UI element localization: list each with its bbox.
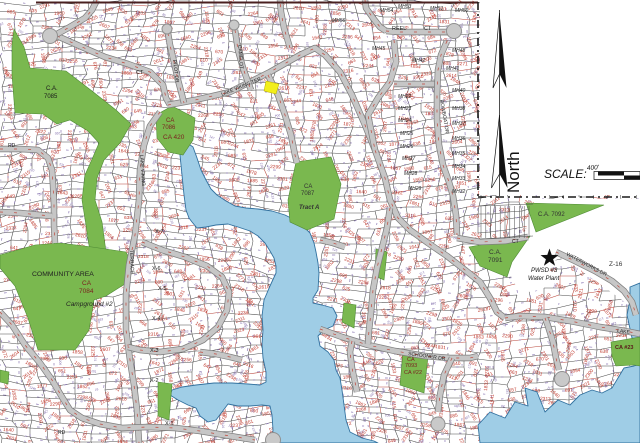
svg-text:7093: 7093 <box>405 363 417 369</box>
svg-text:MH25: MH25 <box>400 131 414 137</box>
svg-text:108: 108 <box>310 139 316 144</box>
svg-text:254: 254 <box>202 18 206 24</box>
svg-text:1833: 1833 <box>483 380 490 391</box>
svg-text:181: 181 <box>505 389 510 395</box>
svg-text:649: 649 <box>356 235 363 244</box>
svg-text:C.A.: C.A. <box>46 86 58 92</box>
svg-text:244: 244 <box>418 429 423 435</box>
svg-text:CT: CT <box>424 26 432 32</box>
svg-text:CA: CA <box>166 118 174 124</box>
svg-text:MH28: MH28 <box>404 171 418 177</box>
svg-text:7087: 7087 <box>301 191 315 197</box>
svg-text:231: 231 <box>349 189 353 195</box>
svg-text:672: 672 <box>109 371 118 377</box>
svg-text:191: 191 <box>391 35 395 41</box>
svg-text:2618: 2618 <box>116 396 127 403</box>
svg-text:181: 181 <box>170 169 174 175</box>
svg-text:188: 188 <box>418 439 424 443</box>
svg-text:164: 164 <box>475 338 479 344</box>
svg-text:221: 221 <box>200 61 205 67</box>
svg-text:220: 220 <box>54 131 60 135</box>
svg-text:638: 638 <box>124 215 132 221</box>
svg-text:164: 164 <box>127 196 131 202</box>
svg-text:MH24: MH24 <box>398 118 412 124</box>
svg-text:MH35: MH35 <box>452 151 466 157</box>
svg-text:X-3: X-3 <box>150 348 159 354</box>
svg-text:2290: 2290 <box>400 298 407 309</box>
svg-text:2244: 2244 <box>363 63 374 69</box>
svg-text:82: 82 <box>501 404 505 408</box>
svg-text:MH23: MH23 <box>398 106 412 112</box>
svg-text:REEL: REEL <box>392 26 406 32</box>
svg-text:231: 231 <box>519 333 525 338</box>
svg-text:103: 103 <box>66 352 70 358</box>
svg-text:199: 199 <box>497 354 503 358</box>
svg-text:205: 205 <box>135 10 140 16</box>
svg-text:CA: CA <box>82 280 92 287</box>
svg-text:X-4: X-4 <box>152 316 161 322</box>
svg-text:7091: 7091 <box>488 257 503 264</box>
svg-text:215: 215 <box>42 174 47 180</box>
svg-text:193: 193 <box>7 87 11 93</box>
svg-text:238: 238 <box>320 32 326 36</box>
svg-text:MH36: MH36 <box>452 136 466 142</box>
svg-text:647: 647 <box>459 246 466 255</box>
svg-text:2290: 2290 <box>502 333 514 340</box>
svg-text:RD: RD <box>8 143 16 149</box>
svg-text:MH29: MH29 <box>408 186 422 192</box>
svg-text:242: 242 <box>251 407 255 413</box>
svg-text:209: 209 <box>134 306 140 311</box>
svg-text:157: 157 <box>385 150 391 154</box>
svg-text:Z-16: Z-16 <box>609 261 623 268</box>
svg-text:PWSD #3: PWSD #3 <box>531 268 558 274</box>
svg-text:184: 184 <box>191 105 195 111</box>
svg-text:171: 171 <box>44 408 48 414</box>
svg-text:C.A.: C.A. <box>489 249 502 256</box>
svg-text:696: 696 <box>89 80 96 89</box>
svg-text:222: 222 <box>3 228 7 234</box>
svg-text:TERRACE: TERRACE <box>128 250 135 275</box>
svg-text:651: 651 <box>307 88 314 97</box>
svg-text:1643: 1643 <box>57 190 68 197</box>
svg-text:218: 218 <box>57 198 61 204</box>
svg-text:X-2: X-2 <box>150 378 159 384</box>
svg-text:249: 249 <box>57 15 61 21</box>
svg-text:MH34: MH34 <box>452 164 466 170</box>
svg-text:CA: CA <box>304 184 312 190</box>
svg-text:240: 240 <box>430 301 436 306</box>
svg-text:MH50: MH50 <box>455 8 469 14</box>
svg-text:2618: 2618 <box>279 85 290 92</box>
svg-text:MH53: MH53 <box>398 4 412 10</box>
svg-text:157: 157 <box>0 387 6 392</box>
svg-text:2607: 2607 <box>382 121 389 133</box>
svg-text:121: 121 <box>410 214 414 220</box>
svg-text:251: 251 <box>0 346 4 352</box>
svg-text:232: 232 <box>569 371 574 377</box>
svg-text:RD: RD <box>58 430 66 436</box>
svg-text:COMMUNITY AREA: COMMUNITY AREA <box>32 271 94 278</box>
svg-text:188: 188 <box>181 358 185 364</box>
svg-text:125: 125 <box>255 107 259 113</box>
svg-text:225: 225 <box>61 64 66 70</box>
svg-text:87: 87 <box>485 365 489 369</box>
svg-text:108: 108 <box>149 90 153 96</box>
svg-text:633: 633 <box>572 284 579 293</box>
svg-text:149: 149 <box>16 314 20 320</box>
svg-text:222: 222 <box>396 196 400 202</box>
svg-text:144: 144 <box>290 48 294 54</box>
svg-text:North: North <box>504 151 523 193</box>
svg-text:110: 110 <box>157 333 163 338</box>
svg-text:179: 179 <box>76 384 80 390</box>
svg-text:MH22: MH22 <box>398 94 412 100</box>
svg-text:MH33: MH33 <box>452 176 466 182</box>
svg-text:221: 221 <box>437 14 442 20</box>
svg-text:X-1: X-1 <box>165 421 174 427</box>
svg-text:2264: 2264 <box>413 194 424 200</box>
svg-text:1640: 1640 <box>356 189 367 196</box>
svg-text:92: 92 <box>347 35 351 39</box>
svg-text:204: 204 <box>274 113 280 118</box>
svg-text:181: 181 <box>359 315 365 320</box>
svg-text:139: 139 <box>1 202 5 208</box>
svg-text:MH37: MH37 <box>452 121 466 127</box>
svg-text:400': 400' <box>587 164 600 172</box>
svg-text:163: 163 <box>141 262 145 268</box>
svg-text:MH48: MH48 <box>452 48 466 54</box>
svg-text:246: 246 <box>154 183 160 188</box>
svg-text:247: 247 <box>389 401 395 406</box>
svg-text:1867: 1867 <box>454 422 465 429</box>
svg-text:CA #22: CA #22 <box>404 370 422 376</box>
svg-text:84: 84 <box>233 77 237 81</box>
svg-text:98: 98 <box>122 237 126 241</box>
svg-text:225: 225 <box>607 355 611 361</box>
svg-text:234: 234 <box>188 236 192 242</box>
svg-text:MH27: MH27 <box>402 156 416 162</box>
svg-text:201: 201 <box>384 413 390 418</box>
svg-text:MH51: MH51 <box>430 6 444 12</box>
svg-text:1831: 1831 <box>439 19 450 26</box>
svg-text:635: 635 <box>445 216 453 222</box>
svg-text:Campground #2: Campground #2 <box>66 301 113 308</box>
svg-text:2604: 2604 <box>97 78 104 89</box>
svg-text:MH26: MH26 <box>400 144 414 150</box>
svg-text:220: 220 <box>29 168 35 173</box>
svg-text:174: 174 <box>216 57 220 63</box>
svg-text:2251: 2251 <box>67 374 79 381</box>
svg-text:CT: CT <box>136 70 144 76</box>
svg-text:C.A. 7092: C.A. 7092 <box>538 212 565 218</box>
svg-text:2318: 2318 <box>138 254 149 260</box>
svg-text:2607: 2607 <box>100 347 111 353</box>
svg-text:631: 631 <box>250 98 259 105</box>
svg-text:239: 239 <box>102 357 108 361</box>
svg-text:244: 244 <box>42 387 46 393</box>
svg-text:153: 153 <box>183 329 189 334</box>
svg-text:2262: 2262 <box>114 406 121 417</box>
svg-text:MH40: MH40 <box>452 88 466 94</box>
svg-text:124: 124 <box>0 99 5 104</box>
svg-text:2290: 2290 <box>50 401 61 408</box>
svg-text:2310: 2310 <box>571 301 578 312</box>
svg-text:199: 199 <box>168 269 172 275</box>
svg-text:1641: 1641 <box>489 394 496 405</box>
svg-text:188: 188 <box>428 145 433 151</box>
svg-text:MH42: MH42 <box>412 58 426 64</box>
svg-text:645: 645 <box>397 34 406 41</box>
svg-text:635: 635 <box>29 8 38 14</box>
svg-text:7085: 7085 <box>44 94 58 100</box>
svg-text:2601: 2601 <box>164 291 175 298</box>
svg-text:172: 172 <box>93 356 97 362</box>
svg-text:248: 248 <box>218 100 223 106</box>
svg-text:205: 205 <box>470 203 476 208</box>
svg-text:122: 122 <box>221 423 225 429</box>
svg-text:191: 191 <box>322 22 328 27</box>
svg-text:1885: 1885 <box>247 178 258 184</box>
svg-text:MH56: MH56 <box>332 18 346 24</box>
svg-text:MH45: MH45 <box>372 46 386 52</box>
svg-text:670: 670 <box>536 356 545 363</box>
svg-text:2316: 2316 <box>213 146 220 157</box>
svg-text:2614: 2614 <box>246 186 253 197</box>
svg-text:SCALE:: SCALE: <box>544 167 587 181</box>
svg-text:685: 685 <box>7 9 16 16</box>
svg-text:MH41: MH41 <box>446 66 460 72</box>
svg-text:Tract A: Tract A <box>299 205 319 211</box>
svg-text:MH38: MH38 <box>452 106 466 112</box>
svg-text:X-5: X-5 <box>158 286 167 292</box>
svg-text:1643: 1643 <box>118 148 130 155</box>
svg-text:90: 90 <box>115 78 119 82</box>
svg-text:7086: 7086 <box>162 125 176 131</box>
svg-text:2264: 2264 <box>212 283 224 290</box>
svg-text:CA 420: CA 420 <box>163 134 185 141</box>
svg-text:630: 630 <box>314 14 321 23</box>
svg-text:130: 130 <box>35 181 40 187</box>
svg-text:203: 203 <box>60 371 65 377</box>
svg-text:1854: 1854 <box>117 439 128 443</box>
svg-text:254: 254 <box>329 10 334 16</box>
svg-text:251: 251 <box>218 113 223 119</box>
svg-text:179: 179 <box>493 207 497 213</box>
svg-text:2268: 2268 <box>198 113 209 119</box>
svg-text:625: 625 <box>120 162 129 168</box>
svg-text:101: 101 <box>91 369 97 374</box>
svg-text:122: 122 <box>422 347 426 353</box>
svg-text:105: 105 <box>456 298 460 304</box>
svg-text:X-7: X-7 <box>155 229 164 235</box>
svg-text:MH54: MH54 <box>380 8 394 14</box>
svg-text:647: 647 <box>391 413 398 422</box>
svg-text:1640: 1640 <box>3 427 14 434</box>
svg-text:X-6: X-6 <box>152 266 161 272</box>
svg-text:670: 670 <box>19 158 26 167</box>
svg-text:Water Plant: Water Plant <box>528 276 560 282</box>
svg-text:221: 221 <box>339 219 345 224</box>
svg-text:141: 141 <box>225 152 229 158</box>
svg-text:93: 93 <box>277 177 281 181</box>
svg-text:106: 106 <box>217 158 223 162</box>
svg-text:670: 670 <box>215 49 224 56</box>
svg-text:206: 206 <box>58 360 62 366</box>
svg-text:156: 156 <box>383 294 387 300</box>
svg-text:2258: 2258 <box>67 58 78 65</box>
svg-text:649: 649 <box>134 108 143 115</box>
svg-text:CT: CT <box>512 239 519 245</box>
svg-text:210: 210 <box>64 201 68 207</box>
svg-text:2618: 2618 <box>380 285 391 291</box>
svg-text:226: 226 <box>79 397 84 403</box>
svg-text:MH32: MH32 <box>452 189 466 195</box>
svg-text:228: 228 <box>475 387 481 392</box>
svg-text:7084: 7084 <box>79 288 94 295</box>
svg-text:CA #23: CA #23 <box>615 345 633 351</box>
svg-text:84: 84 <box>241 257 245 261</box>
svg-text:190: 190 <box>267 166 271 172</box>
svg-text:130: 130 <box>392 164 397 170</box>
